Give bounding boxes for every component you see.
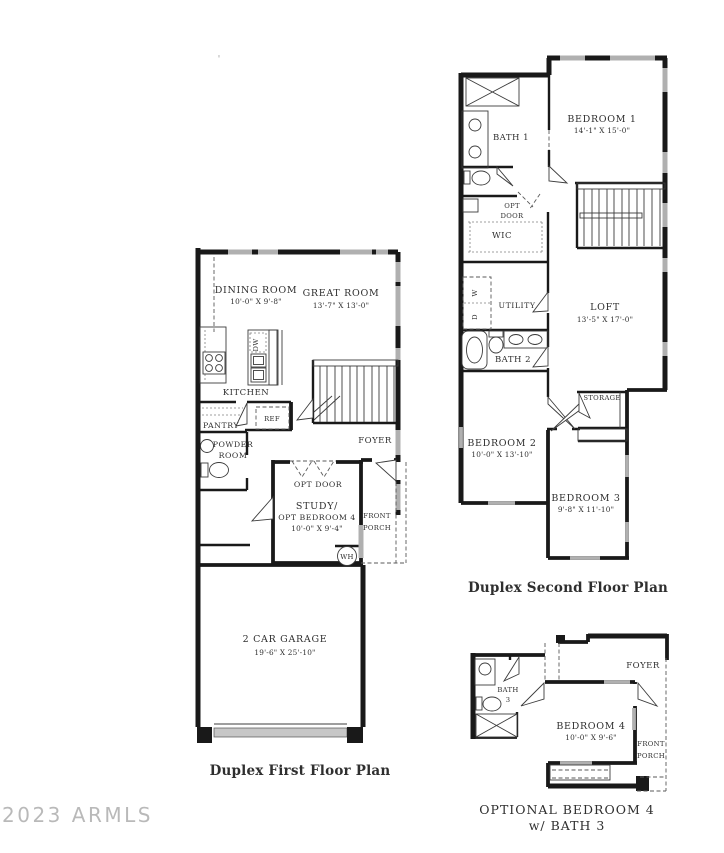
dishwasher-label: DW [252, 338, 260, 351]
toilet-tank-icon [201, 463, 208, 477]
toilet-icon [483, 697, 501, 711]
loft-dims: 13'-5" X 17'-0" [577, 315, 633, 324]
bedroom3-dims: 9'-8" X 11'-10" [558, 505, 614, 514]
floor-plan-sheet: DINING ROOM 10'-0" X 9'-8" GREAT ROOM 13… [0, 0, 724, 853]
garage-post-left [197, 727, 212, 743]
first-floor-plan: DINING ROOM 10'-0" X 9'-8" GREAT ROOM 13… [196, 248, 406, 779]
great-room-dims: 13'-7" X 13'-0" [313, 301, 369, 310]
optional-connection-dashed [545, 643, 559, 681]
toilet-tank-icon [476, 697, 482, 710]
wall-post [556, 635, 565, 643]
bath2-door [533, 346, 548, 367]
fridge-label: REF [264, 415, 280, 423]
bedroom4-closet-dashed [552, 770, 608, 778]
sink-icon [479, 663, 491, 675]
powder-room-label-2: ROOM [219, 451, 248, 460]
optional-plan-caption-1: OPTIONAL BEDROOM 4 [479, 802, 654, 817]
toilet-tank-icon [464, 171, 470, 184]
linen-closet [463, 199, 478, 212]
bedroom1-door [549, 166, 567, 183]
dining-room-dims: 10'-0" X 9'-8" [230, 297, 282, 306]
first-floor-caption: Duplex First Floor Plan [210, 763, 391, 779]
foyer-label: FOYER [626, 661, 660, 671]
bedroom4-door [521, 683, 544, 706]
great-room-label: GREAT ROOM [303, 288, 380, 299]
storage-label: STORAGE [583, 394, 620, 402]
understair-door [297, 399, 313, 420]
pantry-shelves [202, 408, 243, 415]
stray-artifact-mark: ' [218, 55, 220, 65]
stair-rail [580, 213, 642, 218]
floor-plan-drawing: DINING ROOM 10'-0" X 9'-8" GREAT ROOM 13… [0, 0, 724, 853]
bath3-door [504, 657, 519, 681]
sink-icon [509, 335, 523, 345]
second-floor-stairs [577, 183, 665, 246]
garage-dims: 19'-6" X 25'-10" [254, 648, 315, 657]
toilet-tank-icon [489, 331, 503, 337]
toilet-icon [489, 337, 503, 353]
toilet-icon [472, 171, 490, 185]
porch-step [636, 776, 649, 791]
dryer-label: D [471, 314, 479, 320]
bedroom1-label: BEDROOM 1 [567, 114, 636, 125]
toilet-room-door [497, 167, 513, 186]
garage-post-right [347, 727, 363, 743]
foyer-label: FOYER [358, 436, 392, 446]
bath1-label: BATH 1 [493, 133, 529, 143]
second-floor-exterior-walls-2 [461, 390, 667, 558]
sink-icon [528, 335, 542, 345]
front-porch-outline [637, 658, 666, 791]
second-floor-caption: Duplex Second Floor Plan [468, 580, 668, 596]
front-door [638, 683, 657, 706]
sink-icon [469, 119, 481, 131]
sink-icon [201, 440, 214, 453]
sink-icon [469, 146, 481, 158]
front-porch-label-1: FRONT [363, 512, 391, 520]
island-hatch [269, 330, 277, 385]
bath1-fixtures [462, 78, 519, 212]
water-heater-label: WH [340, 553, 354, 561]
toilet-icon [210, 463, 229, 478]
bedroom3-label: BEDROOM 3 [551, 493, 620, 504]
utility-label: UTILITY [499, 301, 536, 310]
second-floor-plan: BATH 1 BEDROOM 1 14'-1" X 15'-0" OPT DOO… [461, 58, 668, 596]
study-label-2: OPT BEDROOM 4 [278, 513, 356, 522]
washer-label: W [471, 289, 479, 296]
front-door [376, 460, 396, 481]
study-label-1: STUDY/ [296, 501, 338, 512]
garage-door-band [214, 728, 347, 737]
opt-door-label-2: DOOR [501, 212, 524, 220]
front-porch-label-2: PORCH [637, 752, 665, 760]
front-porch-label-2: PORCH [363, 524, 391, 532]
opt-door-label: OPT DOOR [294, 480, 343, 489]
optional-bedroom4-plan: BATH 3 FOYER BEDROOM 4 10'-0" X 9'-6" FR… [471, 634, 667, 833]
bedroom2-dims: 10'-0" X 13'-10" [471, 450, 532, 459]
study-dims: 10'-0" X 9'-4" [291, 524, 343, 533]
front-porch-label-1: FRONT [637, 740, 665, 748]
bedroom4-dims: 10'-0" X 9'-6" [565, 733, 617, 742]
powder-room-label-1: POWDER [213, 440, 254, 449]
bedroom1-dims: 14'-1" X 15'-0" [574, 126, 630, 135]
wic-label: WIC [492, 231, 512, 241]
kitchen-counter [200, 327, 226, 383]
garage-label: 2 CAR GARAGE [243, 634, 328, 645]
dining-room-label: DINING ROOM [215, 285, 298, 296]
loft-label: LOFT [590, 302, 620, 313]
opt-door-symbol [290, 461, 336, 477]
first-floor-stairs [313, 360, 398, 422]
chase-hatch [578, 429, 627, 441]
kitchen-island [248, 330, 282, 385]
bedroom4-label: BEDROOM 4 [556, 721, 625, 732]
bedroom2-label: BEDROOM 2 [467, 438, 536, 449]
pantry-label: PANTRY [203, 421, 239, 430]
optional-plan-caption-2: w/ BATH 3 [529, 818, 606, 833]
opt-door-label-1: OPT [504, 202, 520, 210]
kitchen-label: KITCHEN [223, 388, 269, 398]
bath2-label: BATH 2 [495, 355, 531, 365]
bath3-label-2: 3 [506, 696, 511, 704]
study-door [252, 497, 273, 521]
bath3-label-1: BATH [497, 686, 518, 694]
armls-watermark: 2023 ARMLS [2, 803, 153, 827]
